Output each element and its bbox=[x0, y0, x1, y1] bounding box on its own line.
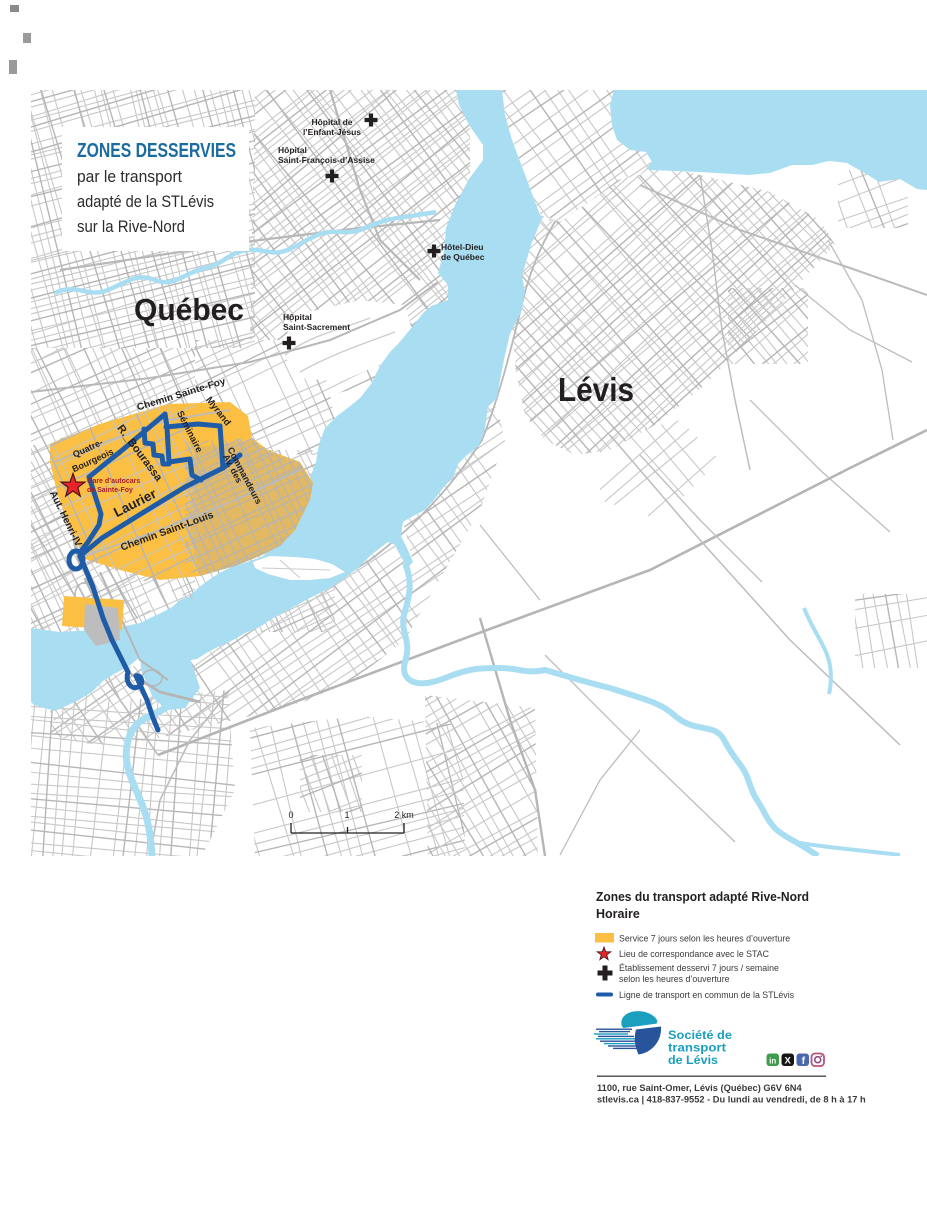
svg-text:Zones du transport adapté Rive: Zones du transport adapté Rive-Nord bbox=[596, 890, 809, 904]
svg-text:Saint-François-d’Assise: Saint-François-d’Assise bbox=[278, 155, 375, 165]
svg-text:Horaire: Horaire bbox=[596, 907, 640, 921]
svg-text:Hôpital: Hôpital bbox=[283, 312, 312, 322]
svg-text:adapté de la STLévis: adapté de la STLévis bbox=[77, 192, 214, 211]
svg-text:in: in bbox=[769, 1057, 776, 1066]
svg-text:f: f bbox=[802, 1055, 806, 1067]
svg-text:Hôpital: Hôpital bbox=[278, 145, 307, 155]
svg-text:1: 1 bbox=[344, 810, 349, 820]
svg-text:selon les heures d’ouverture: selon les heures d’ouverture bbox=[619, 974, 730, 984]
svg-text:ZONES DESSERVIES: ZONES DESSERVIES bbox=[77, 140, 236, 162]
svg-text:0: 0 bbox=[288, 810, 293, 820]
svg-text:Hôtel-Dieu: Hôtel-Dieu bbox=[441, 242, 484, 252]
svg-text:Service 7 jours selon les heur: Service 7 jours selon les heures d’ouver… bbox=[619, 934, 790, 944]
svg-text:Québec: Québec bbox=[134, 292, 244, 327]
svg-text:sur la Rive-Nord: sur la Rive-Nord bbox=[77, 217, 185, 236]
svg-text:Lieu de correspondance avec le: Lieu de correspondance avec le STAC bbox=[619, 949, 770, 959]
svg-text:transport: transport bbox=[668, 1043, 726, 1055]
svg-text:l’Enfant-Jésus: l’Enfant-Jésus bbox=[303, 127, 361, 137]
svg-text:Établissement desservi 7 jours: Établissement desservi 7 jours / semaine bbox=[619, 963, 779, 973]
svg-text:de Lévis: de Lévis bbox=[668, 1055, 718, 1067]
svg-text:Ligne de transport en commun d: Ligne de transport en commun de la STLév… bbox=[619, 990, 795, 1000]
svg-text:1100, rue Saint-Omer, Lévis (Q: 1100, rue Saint-Omer, Lévis (Québec) G6V… bbox=[597, 1083, 802, 1093]
svg-text:Gare d’autocars: Gare d’autocars bbox=[87, 478, 140, 485]
svg-text:de Québec: de Québec bbox=[441, 252, 485, 262]
svg-text:stlevis.ca | 418-837-9552 - Du: stlevis.ca | 418-837-9552 - Du lundi au … bbox=[597, 1095, 866, 1105]
svg-text:de Sainte-Foy: de Sainte-Foy bbox=[87, 487, 133, 494]
svg-text:Lévis: Lévis bbox=[558, 371, 634, 408]
svg-text:Hôpital de: Hôpital de bbox=[311, 117, 352, 127]
svg-text:2 km: 2 km bbox=[394, 810, 414, 820]
svg-text:Saint-Sacrement: Saint-Sacrement bbox=[283, 322, 350, 332]
svg-text:X: X bbox=[785, 1055, 792, 1066]
svg-text:par le transport: par le transport bbox=[77, 167, 182, 186]
svg-text:Société de: Société de bbox=[668, 1030, 732, 1042]
